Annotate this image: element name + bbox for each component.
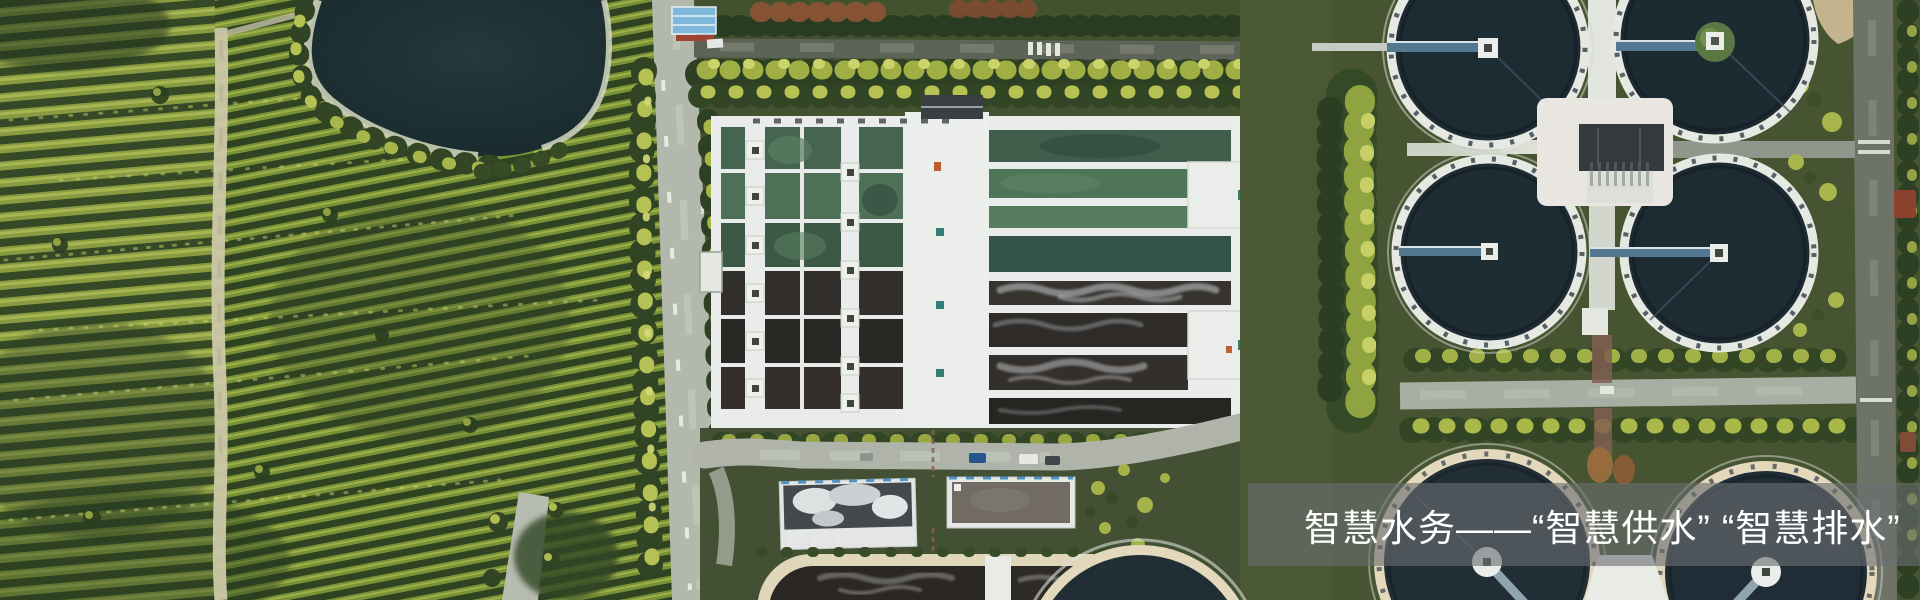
hero-banner: 智慧水务——“智慧供水” “智慧排水” (0, 0, 1920, 600)
caption-panel: 智慧水务——“智慧供水” “智慧排水” (1248, 483, 1920, 566)
caption-text: 智慧水务——“智慧供水” “智慧排水” (1248, 498, 1901, 552)
